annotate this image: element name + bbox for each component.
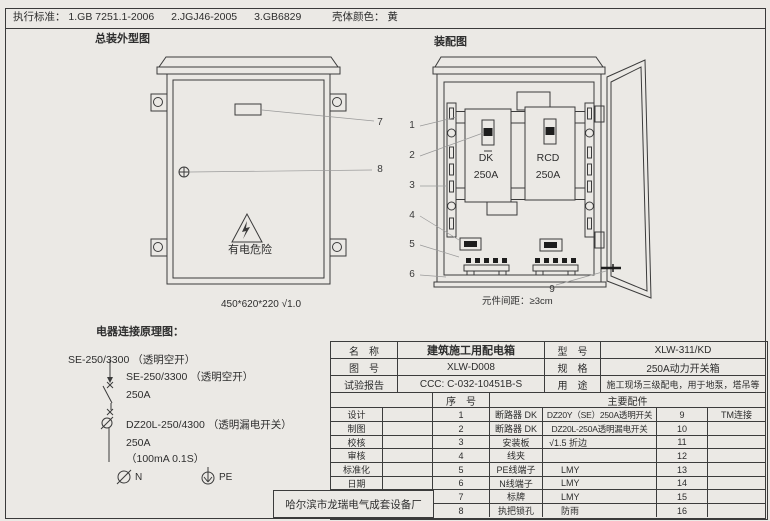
usage-value: 施工现场三级配电，用于地泵，塔吊等 (601, 376, 765, 393)
callout-6: 6 (406, 269, 418, 281)
part-spec2 (708, 504, 765, 517)
info-label: 试验报告 (331, 376, 398, 393)
part-spec: LMY (543, 463, 657, 477)
schematic-incoming-label: SE-250/3300 （透明空开） (68, 354, 195, 366)
part-name: 标牌 (490, 490, 543, 504)
part-no2: 11 (657, 436, 708, 449)
callout-5: 5 (406, 239, 418, 251)
schematic-breaker2-rating: 250A (126, 437, 151, 449)
sign-blank (383, 408, 433, 422)
standard-2: 2.JGJ46-2005 (171, 11, 237, 23)
schematic-breaker1-rating: 250A (126, 389, 151, 401)
info-label: 规 格 (545, 359, 601, 376)
sign-label: 审核 (331, 449, 383, 463)
sign-blank (383, 477, 433, 490)
part-name: 断路器 DK (490, 408, 543, 422)
parts-header: 主要配件 (490, 393, 765, 408)
part-spec: √1.5 折边 (543, 436, 657, 449)
standard-3: 3.GB6829 (254, 11, 301, 23)
standards-label: 执行标准： (13, 11, 66, 23)
schematic-title: 电器连接原理图： (96, 326, 184, 339)
part-no2: 14 (657, 477, 708, 490)
part-spec: DZ20Y（SE）250A透明开关 (543, 408, 657, 422)
part-name: 安装板 (490, 436, 543, 449)
part-no: 2 (433, 422, 490, 436)
part-spec (543, 449, 657, 463)
part-no2: 13 (657, 463, 708, 477)
part-spec2 (708, 477, 765, 490)
part-no: 4 (433, 449, 490, 463)
breaker-rcd-label: RCD (529, 152, 567, 164)
standard-1: 1.GB 7251.1-2006 (68, 11, 154, 23)
spec-value: 250A动力开关箱 (601, 359, 765, 376)
pe-label: PE (219, 472, 232, 484)
part-name: 线夹 (490, 449, 543, 463)
n-label: N (135, 472, 142, 484)
sign-label: 制图 (331, 422, 383, 436)
info-label: 用 途 (545, 376, 601, 393)
header-shell-color: 壳体颜色： 黄 (332, 11, 398, 23)
schematic-breaker2-label: DZ20L-250/4300 （透明漏电开关） (126, 419, 292, 431)
sign-label: 标准化 (331, 463, 383, 477)
callout-4: 4 (406, 210, 418, 222)
callout-1: 1 (406, 120, 418, 132)
part-spec2 (708, 449, 765, 463)
model-number: XLW-311/KD (601, 342, 765, 359)
part-no: 3 (433, 436, 490, 449)
drawing-sheet: 执行标准： 1.GB 7251.1-2006 2.JGJ46-2005 3.GB… (0, 0, 770, 521)
info-label: 图 号 (331, 359, 398, 376)
shell-color-value: 黄 (387, 11, 398, 23)
part-no2: 12 (657, 449, 708, 463)
header-standards: 执行标准： 1.GB 7251.1-2006 2.JGJ46-2005 3.GB… (13, 11, 301, 23)
part-spec: LMY (543, 490, 657, 504)
shell-color-label: 壳体颜色： (332, 11, 385, 23)
schematic-breaker2-trip: （100mA 0.1S） (126, 453, 204, 465)
spacing-note: 元件间距：≥3cm (482, 297, 553, 308)
assembly-drawing-title: 装配图 (434, 36, 467, 49)
part-no: 8 (433, 504, 490, 517)
info-label: 型 号 (545, 342, 601, 359)
sign-label: 日期 (331, 477, 383, 490)
header-divider (5, 28, 765, 29)
blank-cell (331, 393, 433, 408)
part-no: 6 (433, 477, 490, 490)
dimension-note: 450*620*220 √1.0 (221, 299, 301, 311)
breaker-dk-label: DK (470, 152, 502, 164)
part-no2: 9 (657, 408, 708, 422)
manufacturer-name: 哈尔滨市龙瑞电气成套设备厂 (273, 490, 434, 518)
breaker-rcd-rating: 250A (529, 169, 567, 181)
product-name: 建筑施工用配电箱 (398, 342, 545, 359)
sign-blank (383, 436, 433, 449)
part-name: PE线端子 (490, 463, 543, 477)
part-spec: 防雨 (543, 504, 657, 517)
sign-label: 设计 (331, 408, 383, 422)
outline-drawing-title: 总装外型图 (95, 33, 150, 46)
part-spec: LMY (543, 477, 657, 490)
breaker-dk-rating: 250A (470, 169, 502, 181)
hazard-warning-text: 有电危险 (225, 244, 275, 257)
part-no2: 10 (657, 422, 708, 436)
callout-9: 9 (546, 284, 558, 296)
info-label: 名 称 (331, 342, 398, 359)
part-spec2 (708, 463, 765, 477)
part-name: N线端子 (490, 477, 543, 490)
part-spec2: TM连接 (708, 408, 765, 422)
part-no: 5 (433, 463, 490, 477)
part-name: 执把锁孔 (490, 504, 543, 517)
part-spec2 (708, 490, 765, 504)
part-name: 断路器 DK (490, 422, 543, 436)
drawing-number: XLW-D008 (398, 359, 545, 376)
test-report-number: CCC: C-032-10451B-S (398, 376, 545, 393)
schematic-breaker1-label: SE-250/3300 （透明空开） (126, 371, 253, 383)
seq-header: 序 号 (433, 393, 490, 408)
sign-blank (383, 449, 433, 463)
part-spec2 (708, 422, 765, 436)
callout-3: 3 (406, 180, 418, 192)
part-spec: DZ20L-250A透明漏电开关 (543, 422, 657, 436)
part-no2: 15 (657, 490, 708, 504)
callout-7: 7 (374, 117, 386, 129)
callout-8: 8 (374, 164, 386, 176)
part-no: 1 (433, 408, 490, 422)
part-no2: 16 (657, 504, 708, 517)
callout-2: 2 (406, 150, 418, 162)
part-spec2 (708, 436, 765, 449)
sign-blank (383, 422, 433, 436)
sign-blank (383, 463, 433, 477)
part-no: 7 (433, 490, 490, 504)
sign-label: 校核 (331, 436, 383, 449)
